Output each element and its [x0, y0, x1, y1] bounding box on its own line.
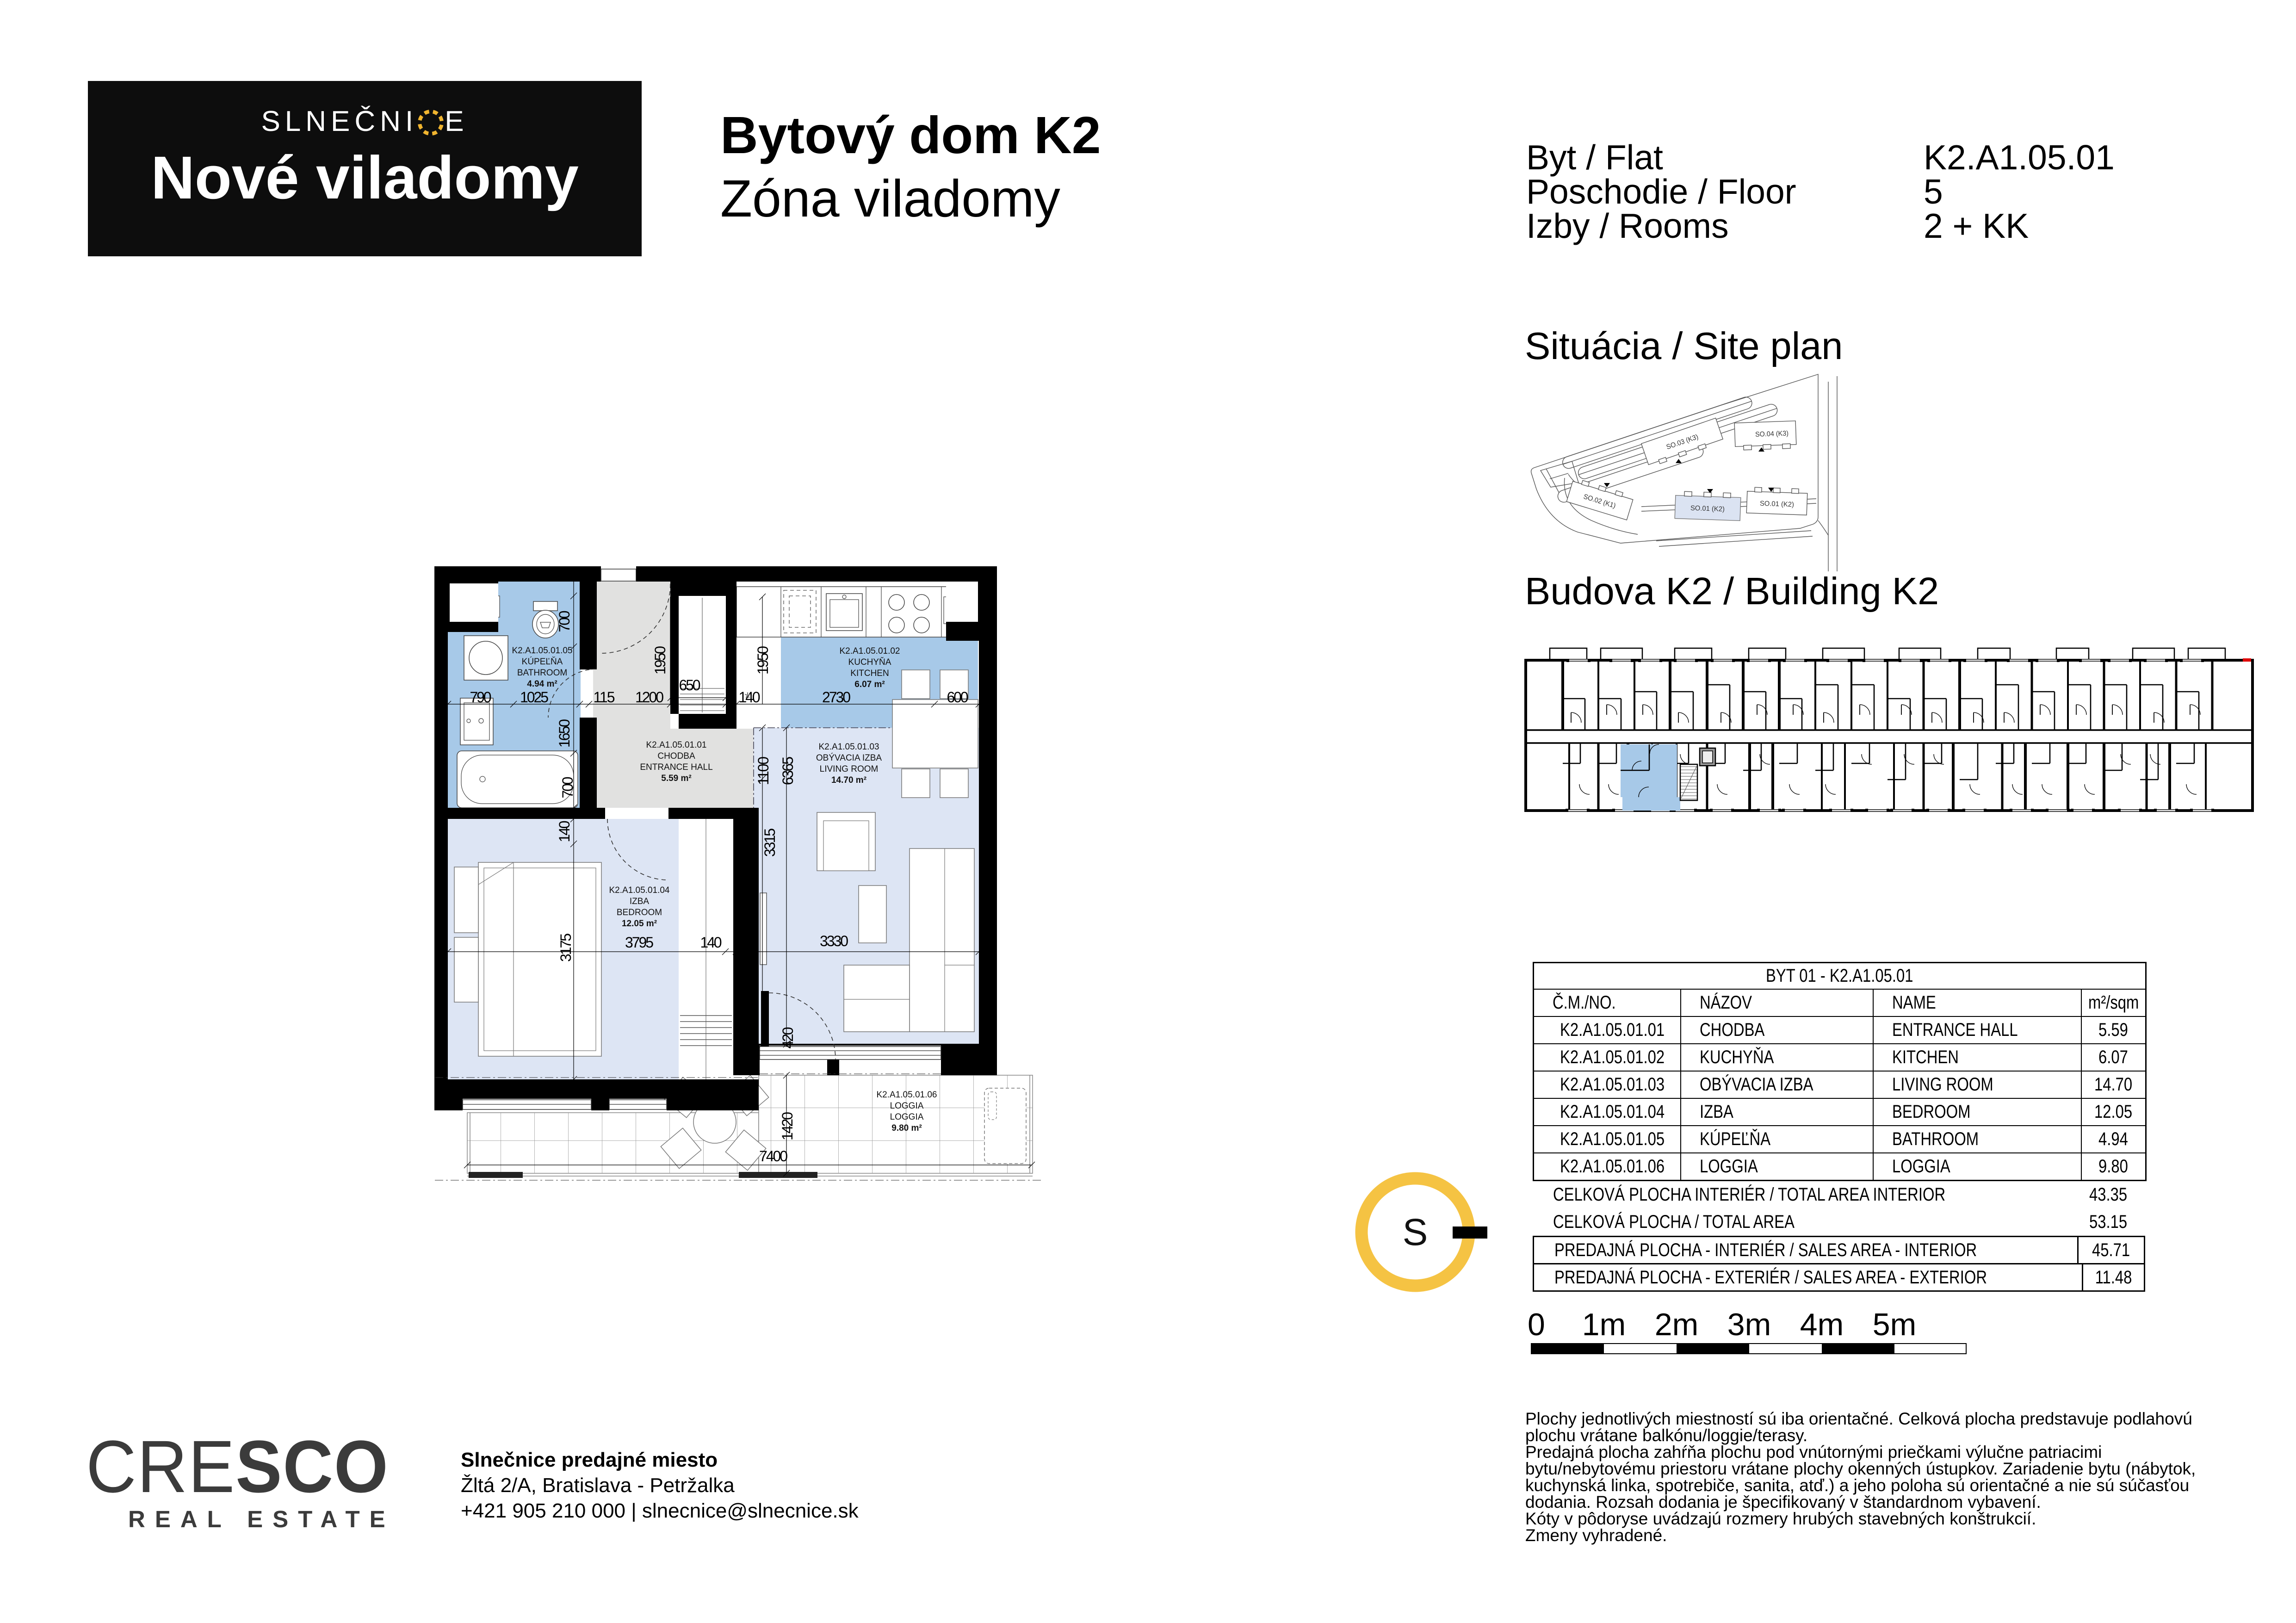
svg-text:1650: 1650	[556, 719, 573, 748]
svg-text:3175: 3175	[557, 933, 574, 962]
svg-text:3795: 3795	[625, 934, 654, 951]
svg-text:KITCHEN: KITCHEN	[850, 669, 889, 678]
svg-text:700: 700	[556, 611, 573, 632]
svg-text:650: 650	[679, 677, 701, 694]
svg-text:BATHROOM: BATHROOM	[517, 668, 567, 678]
svg-text:1100: 1100	[755, 756, 772, 785]
svg-text:LOGGIA: LOGGIA	[890, 1112, 924, 1122]
svg-text:3330: 3330	[820, 933, 848, 949]
svg-text:3m: 3m	[1727, 1307, 1771, 1342]
svg-text:115: 115	[594, 689, 615, 706]
svg-text:K2.A1.05.01.04: K2.A1.05.01.04	[609, 886, 670, 895]
svg-text:CHODBA: CHODBA	[657, 751, 695, 761]
svg-text:ENTRANCE HALL: ENTRANCE HALL	[640, 762, 712, 772]
svg-text:1m: 1m	[1582, 1307, 1626, 1342]
svg-text:7400: 7400	[759, 1148, 788, 1165]
svg-text:K2.A1.05.01.06: K2.A1.05.01.06	[877, 1090, 937, 1100]
svg-text:KUCHYŇA: KUCHYŇA	[848, 657, 891, 667]
svg-text:6.07 m²: 6.07 m²	[854, 680, 885, 689]
svg-text:14.70 m²: 14.70 m²	[831, 775, 866, 785]
svg-text:4.94 m²: 4.94 m²	[527, 679, 557, 689]
svg-text:KÚPEĽŇA: KÚPEĽŇA	[522, 657, 563, 667]
svg-text:4m: 4m	[1800, 1307, 1844, 1342]
svg-text:LOGGIA: LOGGIA	[890, 1101, 924, 1111]
svg-text:SO.04 (K3): SO.04 (K3)	[1755, 429, 1789, 439]
svg-text:OBÝVACIA IZBA: OBÝVACIA IZBA	[816, 753, 882, 763]
svg-text:2m: 2m	[1655, 1307, 1698, 1342]
svg-text:5.59 m²: 5.59 m²	[661, 774, 691, 783]
svg-text:BEDROOM: BEDROOM	[617, 908, 662, 917]
svg-text:600: 600	[947, 689, 969, 706]
svg-text:6365: 6365	[780, 756, 796, 785]
svg-text:790: 790	[470, 689, 492, 706]
svg-text:1950: 1950	[652, 646, 668, 675]
svg-text:140: 140	[556, 821, 573, 842]
svg-text:LIVING ROOM: LIVING ROOM	[820, 764, 879, 774]
svg-text:140: 140	[700, 934, 722, 951]
svg-text:K2.A1.05.01.02: K2.A1.05.01.02	[840, 646, 900, 656]
svg-text:0: 0	[1528, 1307, 1545, 1342]
svg-text:2730: 2730	[822, 689, 851, 706]
svg-text:K2.A1.05.01.05: K2.A1.05.01.05	[512, 646, 573, 656]
svg-text:12.05 m²: 12.05 m²	[622, 919, 657, 929]
svg-text:3315: 3315	[761, 828, 778, 857]
svg-text:1200: 1200	[635, 689, 664, 706]
svg-text:1950: 1950	[755, 646, 771, 675]
svg-text:1025: 1025	[520, 689, 549, 706]
svg-text:9.80 m²: 9.80 m²	[891, 1123, 922, 1133]
svg-text:K2.A1.05.01.03: K2.A1.05.01.03	[819, 742, 879, 752]
svg-text:*: *	[744, 689, 750, 707]
svg-text:K2.A1.05.01.01: K2.A1.05.01.01	[646, 740, 707, 750]
svg-text:1420: 1420	[779, 1112, 796, 1140]
svg-text:700: 700	[559, 777, 576, 799]
svg-text:SO.01 (K2): SO.01 (K2)	[1690, 504, 1725, 514]
svg-text:S: S	[1403, 1211, 1428, 1253]
svg-text:IZBA: IZBA	[630, 897, 650, 906]
svg-text:5m: 5m	[1873, 1307, 1916, 1342]
svg-text:SO.01 (K2): SO.01 (K2)	[1760, 500, 1795, 509]
svg-text:420: 420	[780, 1027, 796, 1049]
